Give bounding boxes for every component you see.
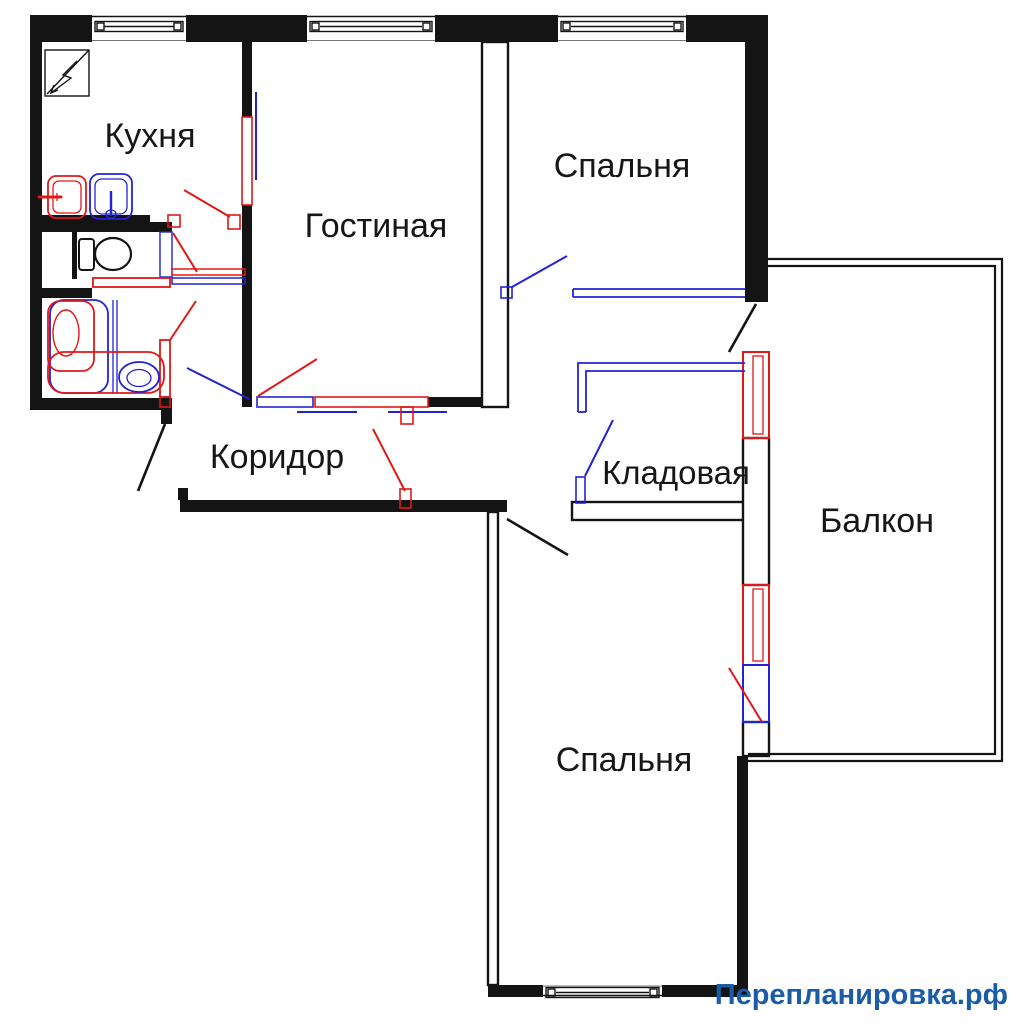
kitchen-window [92, 17, 186, 41]
inner-walls [42, 42, 769, 997]
balcony-wall-segment-a [743, 352, 769, 438]
new-wall-living-bottom [257, 397, 313, 407]
new-wall-to-living [172, 278, 245, 284]
bedroom-top-right-wall [745, 15, 768, 302]
stove-icon [45, 50, 89, 96]
balcony-bottom-door-swing-red [729, 668, 762, 722]
old-wall-to-living [172, 269, 245, 275]
bathtub-fixtures [48, 300, 164, 393]
sink-blue-icon [90, 174, 132, 219]
new-wall-wc [160, 232, 172, 277]
watermark: Перепланировка.рф [715, 979, 1008, 1011]
wc-door-swing-red [173, 233, 197, 272]
floor-plan: Кухня Гостиная Спальня Балкон Кладовая К… [0, 0, 1024, 1024]
label-balcony: Балкон [820, 502, 934, 540]
door-swing-bedroom-top [512, 256, 567, 287]
demolished-wall-kitchen [242, 117, 252, 205]
label-corridor: Коридор [210, 438, 344, 476]
demolished-wall-living-bottom [315, 397, 428, 407]
bedroom-bottom-door-swing [507, 519, 568, 555]
sink-red-icon [39, 176, 86, 218]
label-kitchen: Кухня [105, 117, 196, 155]
old-wall-bath-right [160, 340, 170, 397]
label-storage: Кладовая [602, 454, 750, 491]
corridor-door-red [373, 429, 411, 508]
label-living: Гостиная [305, 207, 448, 245]
label-bedroom-top: Спальня [554, 147, 691, 185]
toilet-icon [79, 238, 131, 270]
living-window [307, 17, 435, 41]
bedroom-top-partition [501, 256, 745, 298]
balcony-door-swing [729, 304, 756, 352]
washbasin-blue-icon [119, 362, 159, 392]
kitchen-door-red [168, 190, 240, 229]
living-door-swing-red [258, 359, 317, 396]
bedroom-top-window [558, 17, 686, 41]
entrance-door-swing [138, 424, 165, 491]
label-bedroom-bottom: Спальня [556, 741, 693, 779]
bath-door-swing-blue [187, 368, 249, 399]
bath-door-swing-red [170, 301, 196, 340]
old-wall-wc-bottom [93, 278, 170, 287]
bedroom-bottom-window [543, 986, 662, 998]
floor-plan-page: Кухня Гостиная Спальня Балкон Кладовая К… [0, 0, 1024, 1024]
balcony-wall-segment-b [743, 585, 769, 665]
